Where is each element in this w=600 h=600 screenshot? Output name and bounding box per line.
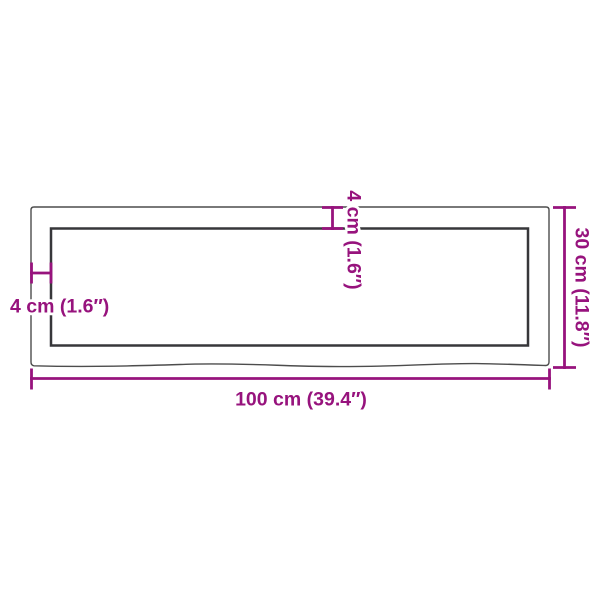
svg-text:4 cm (1.6″): 4 cm (1.6″) bbox=[10, 296, 109, 318]
svg-text:4 cm (1.6″): 4 cm (1.6″) bbox=[343, 190, 365, 289]
svg-text:100 cm (39.4″): 100 cm (39.4″) bbox=[235, 389, 367, 411]
svg-text:30 cm (11.8″): 30 cm (11.8″) bbox=[571, 228, 593, 348]
